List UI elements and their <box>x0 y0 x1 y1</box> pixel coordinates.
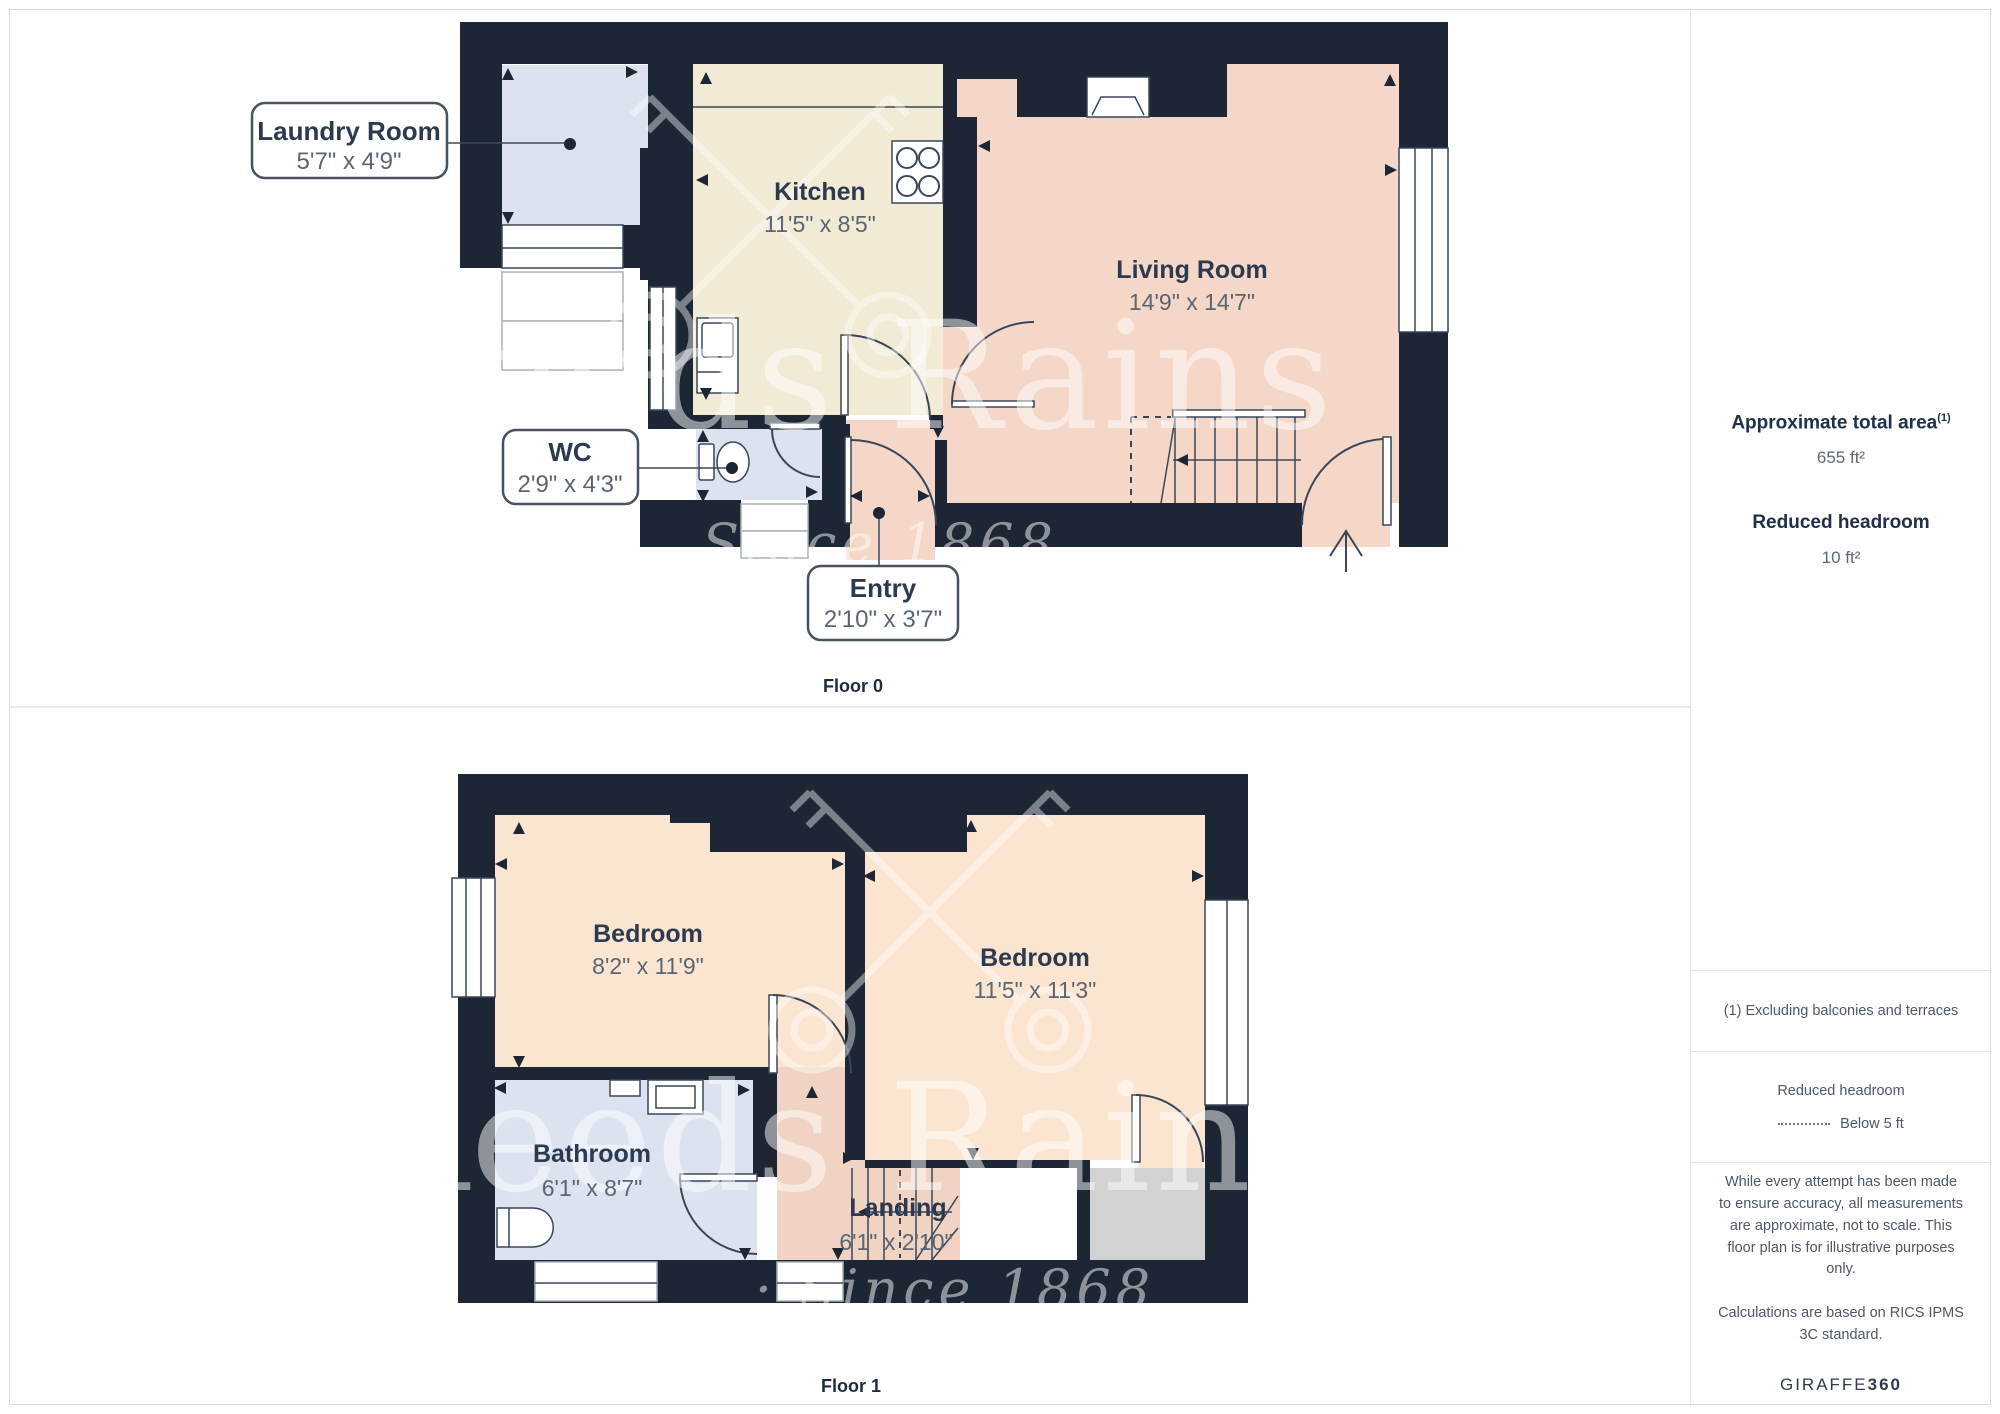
wc-label: WC <box>548 437 592 467</box>
bathroom-dims: 6'1" x 8'7" <box>542 1175 643 1201</box>
living-window <box>1399 148 1448 332</box>
bedroom-left-label: Bedroom <box>593 920 703 948</box>
legend-section: Reduced headroom Below 5 ft <box>1691 1052 1991 1163</box>
legend-title: Reduced headroom <box>1777 1083 1904 1099</box>
entry-label: Entry <box>850 573 917 603</box>
total-area-text: Approximate total area <box>1731 412 1937 433</box>
kitchen-label: Kitchen <box>774 178 866 206</box>
total-area-footnote-ref: (1) <box>1937 412 1950 424</box>
living-room-dims: 14'9" x 14'7" <box>1129 289 1255 315</box>
footnote-text: (1) Excluding balconies and terraces <box>1724 1003 1959 1019</box>
watermark-brand: Reeds Rains <box>354 1052 1337 1226</box>
laundry-label: Laundry Room <box>257 116 440 146</box>
laundry-window <box>502 225 623 268</box>
giraffe-logo-text: GIRAFFE <box>1780 1375 1868 1394</box>
wc-dims: 2'9" x 4'3" <box>518 471 623 498</box>
watermark-brand: Reeds Rains <box>354 290 1337 464</box>
legend-row: Below 5 ft <box>1778 1116 1904 1132</box>
laundry-dims: 5'7" x 4'9" <box>297 148 402 175</box>
floor1-bottom-window <box>535 1262 657 1301</box>
front-door <box>1383 437 1391 525</box>
bedroom-right-dims: 11'5" x 11'3" <box>974 977 1097 1003</box>
bathroom-label: Bathroom <box>533 1140 651 1168</box>
floor1-caption: Floor 1 <box>821 1376 881 1396</box>
watermark-tagline: · Since 1868 <box>755 1258 1155 1321</box>
reduced-headroom-label: Reduced headroom <box>1752 512 1929 534</box>
disclaimer-text-1: While every attempt has been made to ens… <box>1717 1172 1965 1281</box>
floorplan-page: Reeds Rains Since 1868 Kitchen 11'5" x 8… <box>0 0 2000 1414</box>
entry-dims: 2'10" x 3'7" <box>824 606 942 633</box>
area-summary-section: Approximate total area(1) 655 ft² Reduce… <box>1691 10 1991 971</box>
total-area-label: Approximate total area(1) <box>1731 412 1950 434</box>
giraffe360-logo: GIRAFFE360 <box>1780 1375 1902 1395</box>
kitchen-dims: 11'5" x 8'5" <box>764 211 876 237</box>
bedroom-right-label: Bedroom <box>980 944 1090 972</box>
living-recess <box>957 79 1017 117</box>
landing-label: Landing <box>849 1194 946 1222</box>
bedroom-left-window <box>452 878 495 997</box>
disclaimer-text-2: Calculations are based on RICS IPMS 3C s… <box>1717 1303 1965 1347</box>
disclaimer-section: While every attempt has been made to ens… <box>1691 1163 1991 1404</box>
giraffe-logo-number: 360 <box>1868 1375 1902 1394</box>
bedroom-left-dims: 8'2" x 11'9" <box>592 953 704 979</box>
info-sidebar: Approximate total area(1) 655 ft² Reduce… <box>1690 10 1991 1404</box>
total-area-value: 655 ft² <box>1817 448 1865 468</box>
floor-plans-canvas: Reeds Rains Since 1868 Kitchen 11'5" x 8… <box>0 0 1690 1414</box>
legend-value: Below 5 ft <box>1840 1116 1904 1132</box>
reduced-headroom-value: 10 ft² <box>1822 548 1861 568</box>
hob-icon <box>892 141 943 203</box>
landing-dims: 6'1" x 2'10" <box>839 1229 952 1255</box>
dotted-line-icon <box>1778 1123 1830 1125</box>
footnote-section: (1) Excluding balconies and terraces <box>1691 971 1991 1052</box>
living-room-label: Living Room <box>1116 256 1267 284</box>
floor0-caption: Floor 0 <box>823 676 883 696</box>
